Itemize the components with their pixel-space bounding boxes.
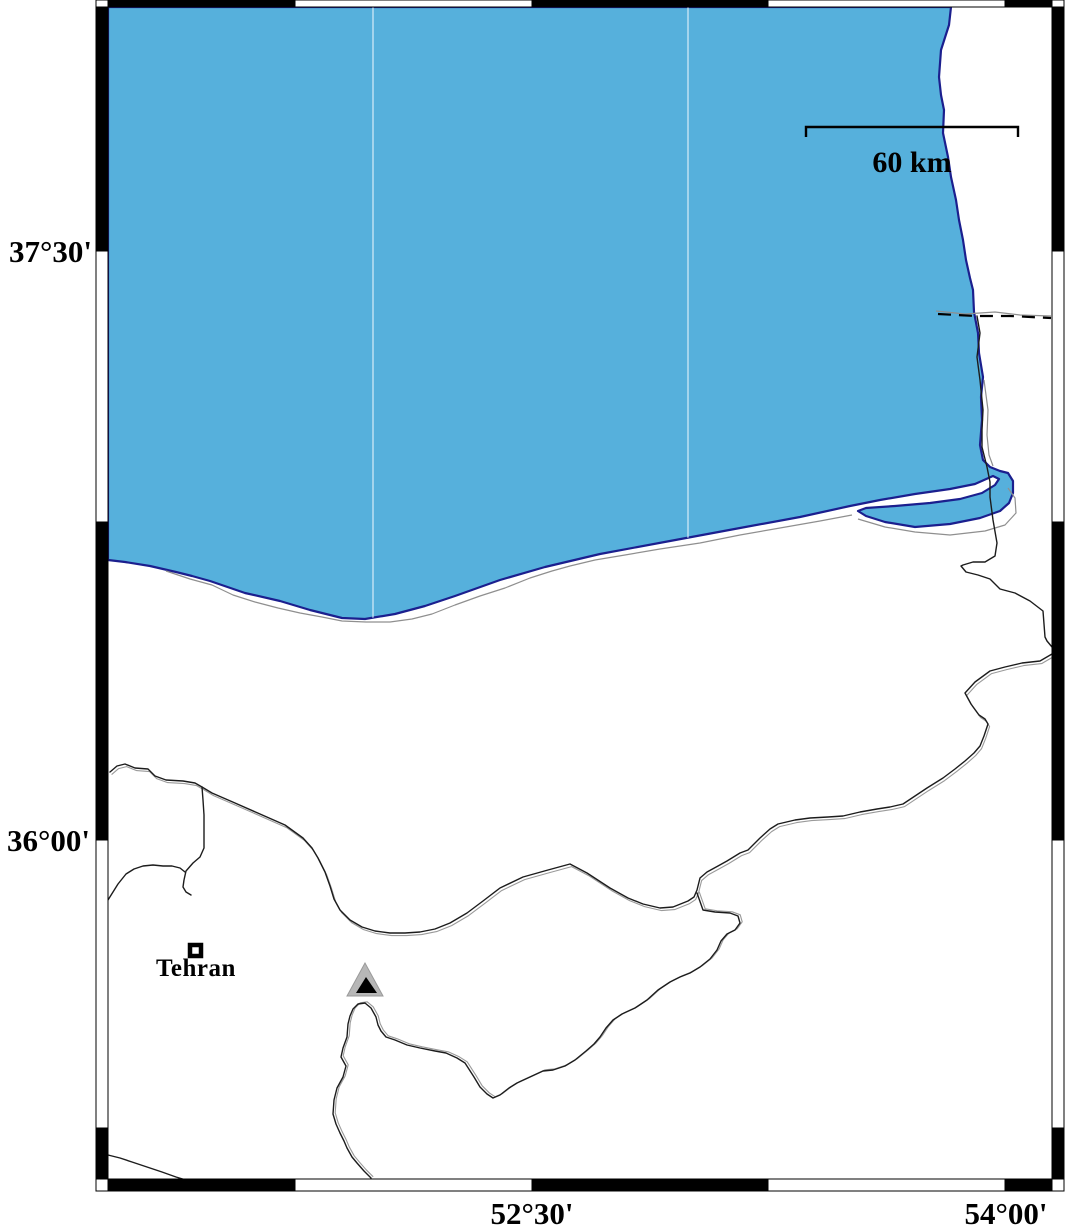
frame-top-seg5	[1005, 0, 1052, 7]
frame-right-seg3	[1052, 522, 1064, 840]
frame-top-seg3	[532, 0, 768, 7]
city-label: Tehran	[156, 955, 236, 982]
frame-left-seg5	[96, 1128, 108, 1179]
frame-top-seg1	[108, 0, 295, 7]
frame-bottom-seg3	[532, 1179, 768, 1191]
frame-right-seg1	[1052, 7, 1064, 251]
tehran-region-boundary-branch	[183, 787, 204, 895]
frame-left-seg4	[96, 840, 108, 1128]
tehran-region-boundary-west	[108, 865, 185, 900]
frame-bottom-seg1	[108, 1179, 295, 1191]
frame-corner-br	[1052, 1179, 1064, 1191]
scale-bar-label: 60 km	[872, 146, 951, 179]
frame-top-seg4	[768, 0, 1005, 7]
city-marker-tehran: Tehran	[156, 945, 236, 982]
water-layer	[108, 0, 1013, 640]
frame-bottom-seg2	[295, 1179, 532, 1191]
map-canvas: 60 km Tehran 37°30' 36°00' 52°30' 54°00'	[0, 0, 1066, 1229]
boundary-shadow-line-south	[335, 892, 742, 1177]
main-boundary-line	[110, 654, 1052, 933]
bottom-left-boundary	[108, 1155, 186, 1180]
frame-corner-bl	[96, 1179, 108, 1191]
map-page: 60 km Tehran 37°30' 36°00' 52°30' 54°00'	[0, 0, 1066, 1229]
frame-right-seg5	[1052, 1128, 1064, 1179]
volcano-marker	[347, 963, 383, 996]
frame-bottom-seg4	[768, 1179, 1005, 1191]
lon-label-54-00: 54°00'	[964, 1196, 1047, 1229]
frame-left-seg1	[96, 7, 108, 251]
frame-right-seg4	[1052, 840, 1064, 1128]
frame-right-seg2	[1052, 251, 1064, 522]
frame-left-seg2	[96, 251, 108, 522]
boundary-shadow-line	[112, 657, 1054, 936]
frame-left-seg3	[96, 522, 108, 840]
caspian-sea-polygon	[108, 7, 1013, 619]
frame-corner-tl	[96, 0, 108, 7]
lat-label-36-00: 36°00'	[7, 823, 90, 858]
frame-bottom-seg5	[1005, 1179, 1052, 1191]
secondary-coastline-east	[984, 380, 993, 466]
frame-corner-tr	[1052, 0, 1064, 7]
lat-label-37-30: 37°30'	[9, 234, 92, 269]
lon-label-52-30: 52°30'	[490, 1196, 573, 1229]
frame-top-seg2	[295, 0, 532, 7]
